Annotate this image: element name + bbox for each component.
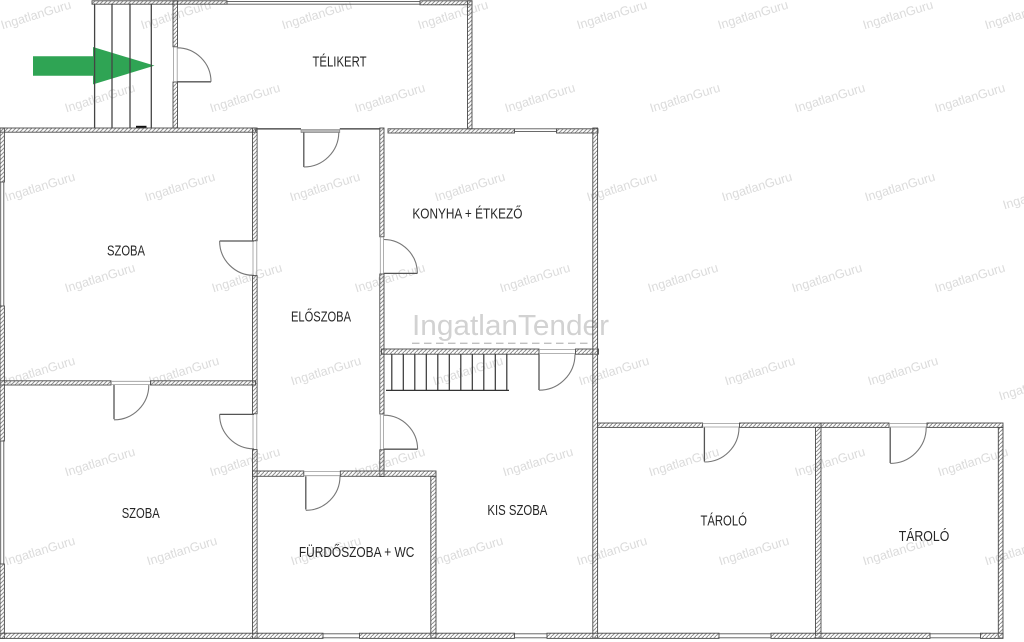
svg-text:SZOBA: SZOBA xyxy=(107,243,145,260)
svg-text:SZOBA: SZOBA xyxy=(122,505,160,522)
svg-text:TÁROLÓ: TÁROLÓ xyxy=(899,528,950,545)
svg-text:KONYHA + ÉTKEZŐ: KONYHA + ÉTKEZŐ xyxy=(412,205,522,222)
svg-text:TÁROLÓ: TÁROLÓ xyxy=(700,513,747,530)
svg-text:KIS SZOBA: KIS SZOBA xyxy=(487,502,547,519)
svg-text:IngatlanTender: IngatlanTender xyxy=(412,310,610,342)
svg-text:ELŐSZOBA: ELŐSZOBA xyxy=(291,309,351,326)
svg-text:FÜRDŐSZOBA + WC: FÜRDŐSZOBA + WC xyxy=(299,543,415,561)
svg-text:TÉLIKERT: TÉLIKERT xyxy=(313,54,367,71)
